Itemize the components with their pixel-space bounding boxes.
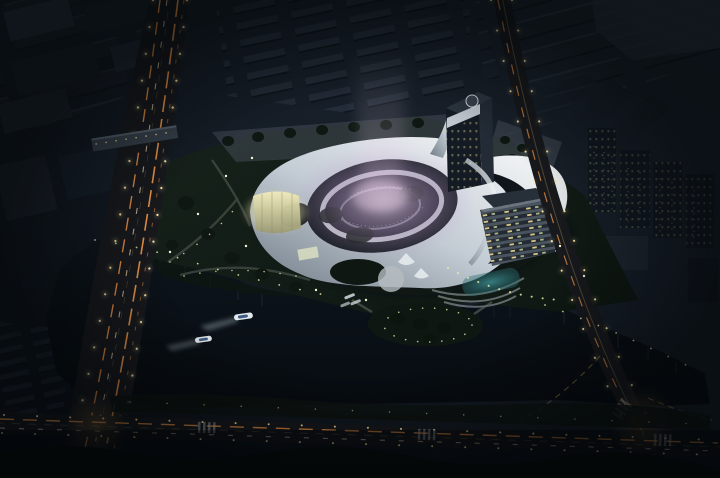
aerial-night-scene (0, 0, 720, 478)
vignette (0, 0, 720, 478)
bottom-darkening (0, 430, 720, 478)
rendering-canvas (0, 0, 720, 478)
